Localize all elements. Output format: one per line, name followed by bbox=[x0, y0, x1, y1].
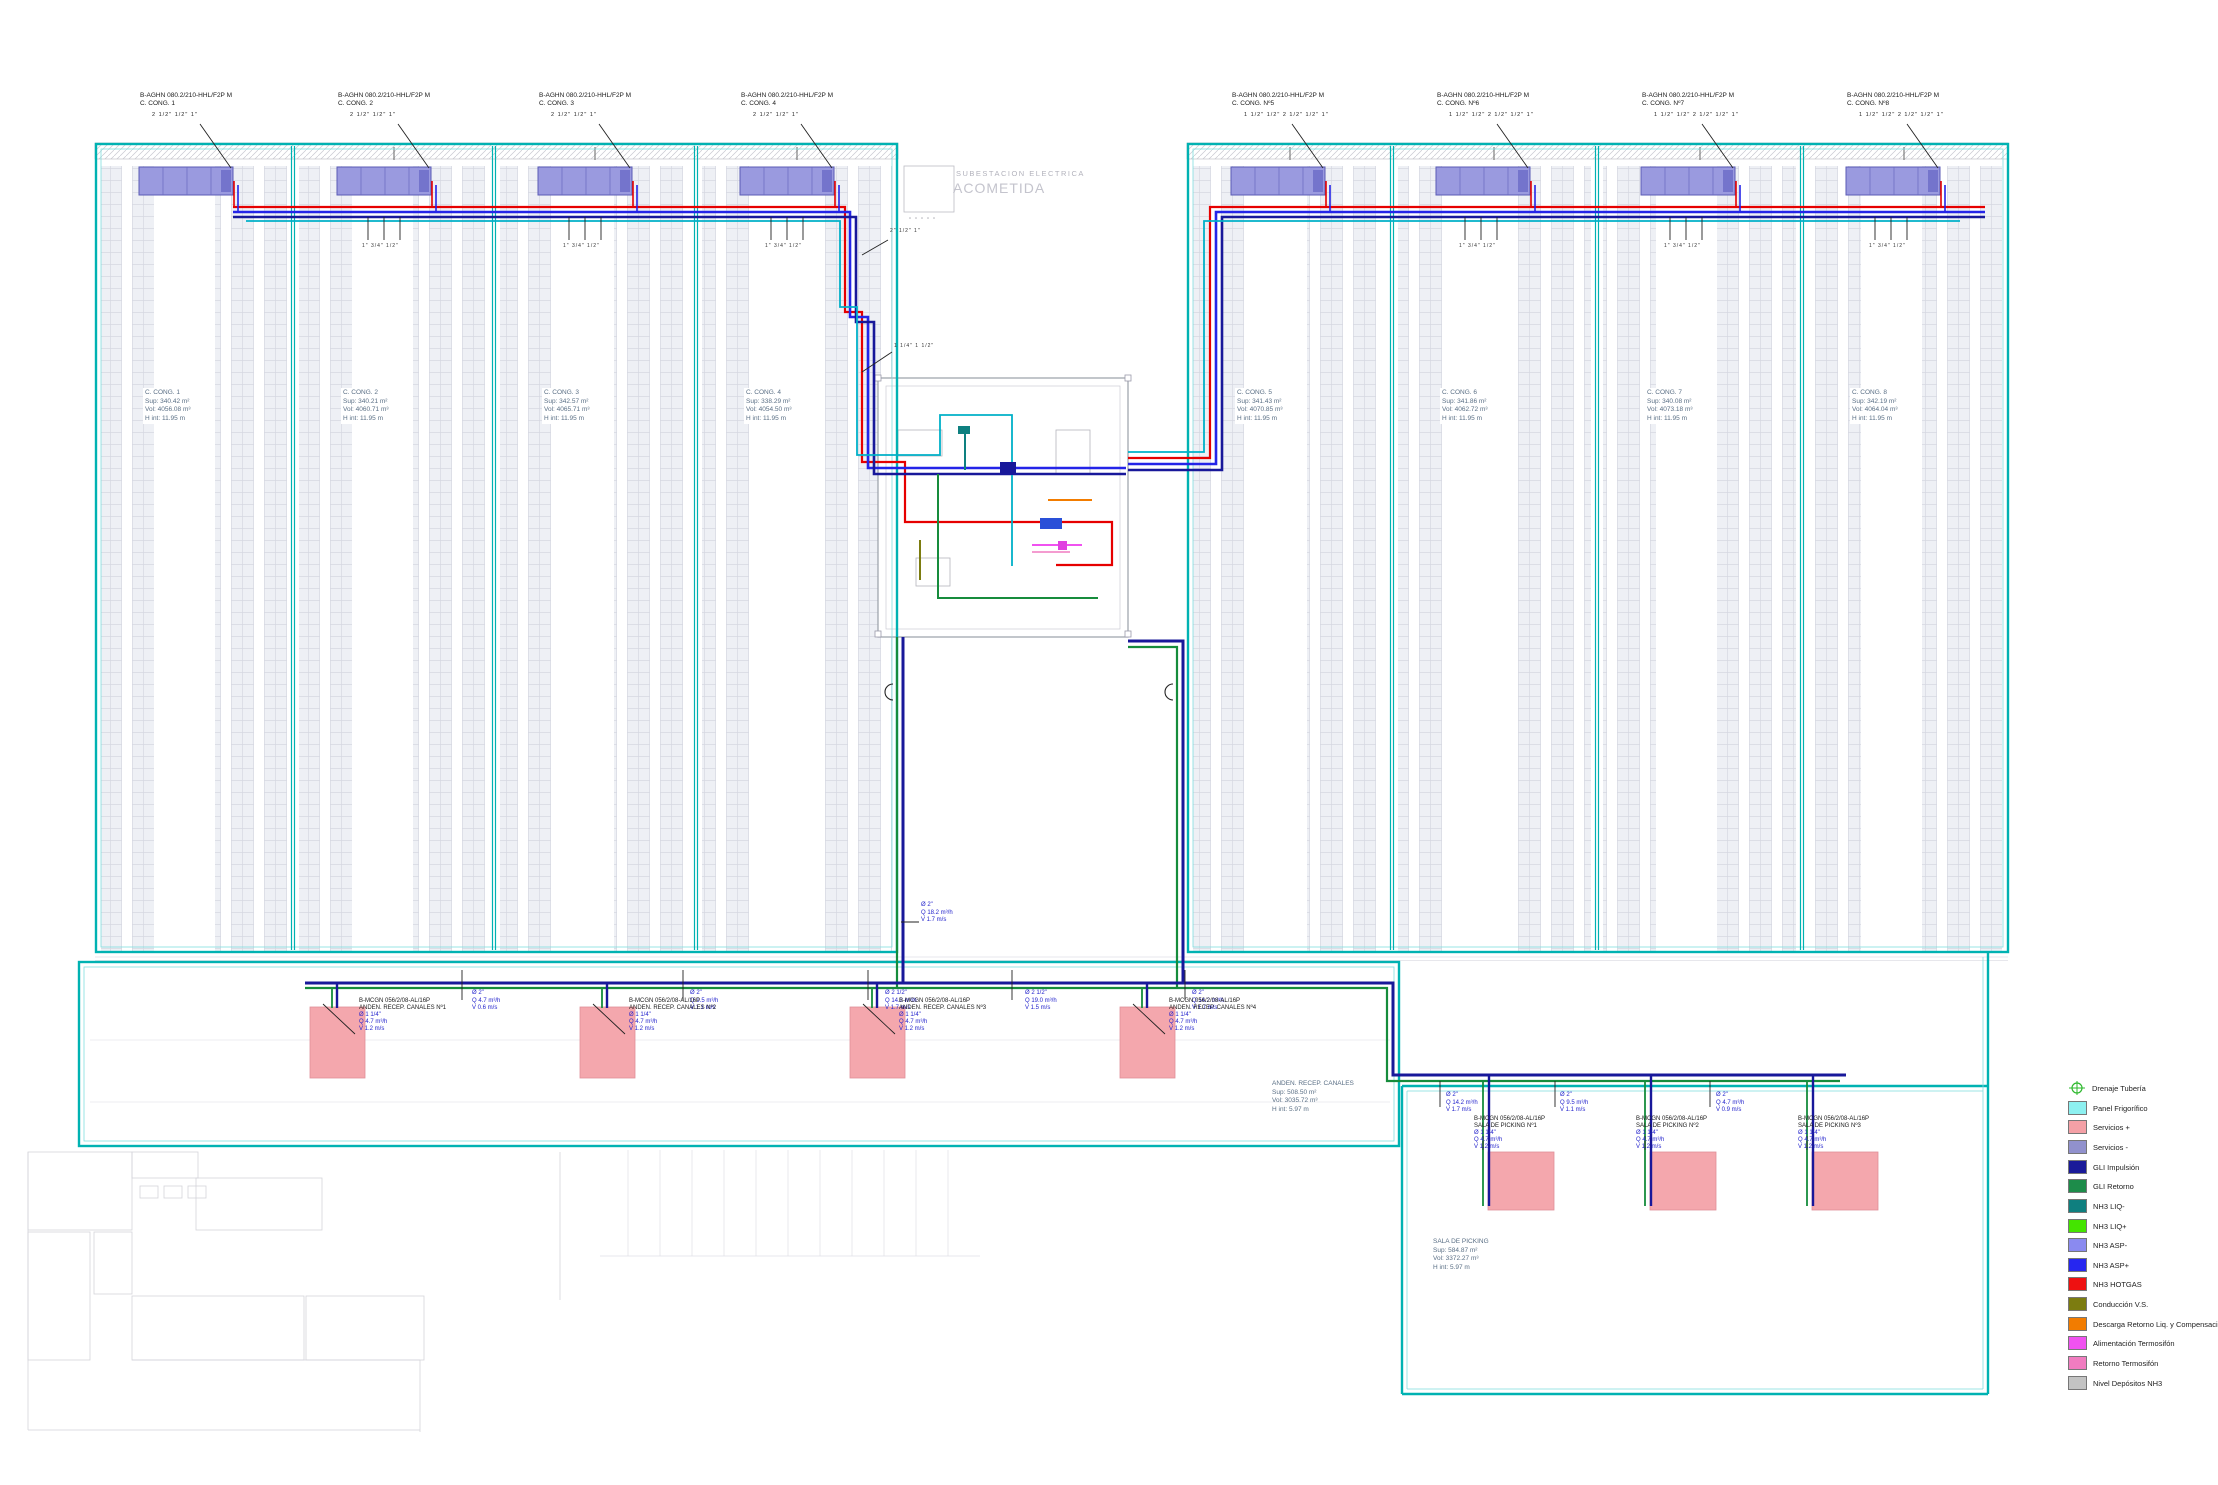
legend-label: Servicios - bbox=[2093, 1143, 2128, 1152]
pipe-velocity: V 1.1 m/s bbox=[1560, 1107, 1588, 1115]
pipe-flow: Q 14.2 m³/h bbox=[1446, 1100, 1478, 1108]
legend-item: Panel Frigorífico bbox=[2068, 1100, 2148, 1116]
legend-item: Nivel Depósitos NH3 bbox=[2068, 1375, 2162, 1391]
pipe-diameter: Ø 2" bbox=[921, 902, 953, 910]
pipe-diameter: Ø 2 1/2" bbox=[885, 990, 917, 998]
box-diameter: Ø 1 1/4" bbox=[359, 1012, 446, 1019]
legend-label: Drenaje Tubería bbox=[2092, 1084, 2146, 1093]
chamber-info-name: C. CONG. 5 bbox=[1237, 389, 1283, 398]
legend-label: NH3 HOTGAS bbox=[2093, 1280, 2142, 1289]
pipe-diameter: Ø 2" bbox=[1192, 990, 1224, 998]
chamber-vol: Vol: 4062.72 m³ bbox=[1442, 406, 1488, 415]
pipe-diameter: Ø 2" bbox=[472, 990, 500, 998]
chamber-info-name: C. CONG. 3 bbox=[544, 389, 590, 398]
legend-swatch bbox=[2068, 1317, 2087, 1331]
chamber-name: C. CONG. 2 bbox=[338, 100, 430, 108]
legend-swatch bbox=[2068, 1179, 2087, 1193]
unit-model: B-AGHN 080.2/210-HHL/F2P M bbox=[1232, 92, 1329, 100]
pipe-sizes: 2 1/2" 1/2" 1" bbox=[152, 111, 232, 119]
unit-model: B-AGHN 080.2/210-HHL/F2P M bbox=[741, 92, 833, 100]
stub-sizes: 1" 3/4" 1/2" bbox=[1459, 243, 1496, 249]
pipe-velocity: V 1.7 m/s bbox=[1446, 1107, 1478, 1115]
box-velocity: V 1.2 m/s bbox=[1636, 1144, 1707, 1151]
area-info-anden: ANDEN. RECEP. CANALESSup: 508.50 m²Vol: … bbox=[1272, 1080, 1354, 1114]
legend-swatch bbox=[2068, 1238, 2087, 1252]
area-vol: Vol: 3035.72 m³ bbox=[1272, 1097, 1354, 1106]
legend-swatch bbox=[2068, 1376, 2087, 1390]
unit-model: B-AGHN 080.2/210-HHL/F2P M bbox=[1642, 92, 1739, 100]
service-box-label: B-MCGN 056/2/08-AL/16PANDEN. RECEP. CANA… bbox=[1169, 998, 1256, 1033]
chamber-info-name: C. CONG. 2 bbox=[343, 389, 389, 398]
pipe-flow: Q 4.7 m³/h bbox=[472, 998, 500, 1006]
drop-green-2 bbox=[1128, 647, 1177, 988]
unit-model: B-AGHN 080.2/210-HHL/F2P M bbox=[140, 92, 232, 100]
unit-model: B-AGHN 080.2/210-HHL/F2P M bbox=[1847, 92, 1944, 100]
box-name: ANDEN. RECEP. CANALES Nº1 bbox=[359, 1005, 446, 1012]
legend-item: NH3 ASP- bbox=[2068, 1237, 2127, 1253]
chamber-info: C. CONG. 1Sup: 340.42 m²Vol: 4056.08 m³H… bbox=[143, 388, 193, 424]
chamber-sup: Sup: 342.57 m² bbox=[544, 398, 590, 407]
legend-item: NH3 HOTGAS bbox=[2068, 1276, 2142, 1292]
unit-model: B-AGHN 080.2/210-HHL/F2P M bbox=[1437, 92, 1534, 100]
service-boxes bbox=[310, 1007, 1878, 1210]
box-flow: Q 4.7 m³/h bbox=[1636, 1137, 1707, 1144]
box-name: SALA DE PICKING Nº2 bbox=[1636, 1123, 1707, 1130]
box-flow: Q 4.7 m³/h bbox=[1474, 1137, 1545, 1144]
box-diameter: Ø 1 1/4" bbox=[1798, 1130, 1869, 1137]
box-name: ANDEN. RECEP. CANALES Nº3 bbox=[899, 1005, 986, 1012]
box-name: ANDEN. RECEP. CANALES Nº2 bbox=[629, 1005, 716, 1012]
area-sup: Sup: 584.87 m² bbox=[1433, 1247, 1489, 1256]
legend-label: NH3 ASP+ bbox=[2093, 1261, 2129, 1270]
box-diameter: Ø 1 1/4" bbox=[629, 1012, 716, 1019]
pipe-label: Ø 2"Q 9.5 m³/hV 1.1 m/s bbox=[1560, 1092, 1588, 1115]
chamber-name: C. CONG. 1 bbox=[140, 100, 232, 108]
substation-title: SUBESTACION ELECTRICA bbox=[956, 169, 1085, 178]
box-model: B-MCGN 056/2/08-AL/16P bbox=[629, 998, 716, 1005]
box-velocity: V 1.2 m/s bbox=[629, 1026, 716, 1033]
box-diameter: Ø 1 1/4" bbox=[899, 1012, 986, 1019]
pipe-flow: Q 19.0 m³/h bbox=[1025, 998, 1057, 1006]
chamber-name: C. CONG. Nº6 bbox=[1437, 100, 1534, 108]
pipe-label: Ø 2"Q 14.2 m³/hV 1.7 m/s bbox=[1446, 1092, 1478, 1115]
chamber-info: C. CONG. 5Sup: 341.43 m²Vol: 4070.85 m³H… bbox=[1235, 388, 1285, 424]
chamber-h: H int: 11.95 m bbox=[746, 415, 792, 424]
chamber-sup: Sup: 340.21 m² bbox=[343, 398, 389, 407]
dock-lines bbox=[95, 957, 2008, 961]
pipe-velocity: V 1.5 m/s bbox=[1025, 1005, 1057, 1013]
chamber-info-name: C. CONG. 8 bbox=[1852, 389, 1898, 398]
chamber-sup: Sup: 340.42 m² bbox=[145, 398, 191, 407]
area-title: ANDEN. RECEP. CANALES bbox=[1272, 1080, 1354, 1089]
bottom-green bbox=[305, 988, 1840, 1081]
legend-label: Conducción V.S. bbox=[2093, 1300, 2148, 1309]
legend-label: NH3 LIQ+ bbox=[2093, 1222, 2127, 1231]
legend-item: GLI Retorno bbox=[2068, 1178, 2134, 1194]
legend-label: Descarga Retorno Liq. y Compensación bbox=[2093, 1320, 2218, 1329]
legend-label: Servicios + bbox=[2093, 1123, 2130, 1132]
unit-model: B-AGHN 080.2/210-HHL/F2P M bbox=[338, 92, 430, 100]
box-name: SALA DE PICKING Nº1 bbox=[1474, 1123, 1545, 1130]
chamber-h: H int: 11.95 m bbox=[1852, 415, 1898, 424]
box-name: SALA DE PICKING Nº3 bbox=[1798, 1123, 1869, 1130]
box-flow: Q 4.7 m³/h bbox=[1798, 1137, 1869, 1144]
pipe-diameter: Ø 2" bbox=[1446, 1092, 1478, 1100]
legend-swatch bbox=[2068, 1297, 2087, 1311]
chamber-sup: Sup: 340.08 m² bbox=[1647, 398, 1693, 407]
stub-sizes: 1" 3/4" 1/2" bbox=[765, 243, 802, 249]
chamber-sup: Sup: 342.19 m² bbox=[1852, 398, 1898, 407]
pipe-diameter: Ø 2" bbox=[1560, 1092, 1588, 1100]
evaporator-label: B-AGHN 080.2/210-HHL/F2P MC. CONG. Nº51 … bbox=[1232, 92, 1329, 119]
pipe-velocity: V 0.6 m/s bbox=[472, 1005, 500, 1013]
box-model: B-MCGN 056/2/08-AL/16P bbox=[1474, 1116, 1545, 1123]
pipe-label: Ø 2"Q 4.7 m³/hV 0.6 m/s bbox=[472, 990, 500, 1013]
pipe-sizes: 1 1/2" 1/2" 2 1/2" 1/2" 1" bbox=[1244, 111, 1329, 119]
service-box-label: B-MCGN 056/2/08-AL/16PSALA DE PICKING Nº… bbox=[1474, 1116, 1545, 1151]
service-box-label: B-MCGN 056/2/08-AL/16PANDEN. RECEP. CANA… bbox=[359, 998, 446, 1033]
evaporator-label: B-AGHN 080.2/210-HHL/F2P MC. CONG. 42 1/… bbox=[741, 92, 833, 119]
pipe-diameter: Ø 2" bbox=[1716, 1092, 1744, 1100]
evaporator-label: B-AGHN 080.2/210-HHL/F2P MC. CONG. 32 1/… bbox=[539, 92, 631, 119]
box-velocity: V 1.2 m/s bbox=[359, 1026, 446, 1033]
box-diameter: Ø 1 1/4" bbox=[1169, 1012, 1256, 1019]
legend-label: NH3 ASP- bbox=[2093, 1241, 2127, 1250]
box-diameter: Ø 1 1/4" bbox=[1474, 1130, 1545, 1137]
service-box-label: B-MCGN 056/2/08-AL/16PSALA DE PICKING Nº… bbox=[1636, 1116, 1707, 1151]
legend-swatch bbox=[2068, 1336, 2087, 1350]
drain-symbol-icon bbox=[2068, 1081, 2086, 1095]
legend-swatch bbox=[2068, 1277, 2087, 1291]
chamber-h: H int: 11.95 m bbox=[1442, 415, 1488, 424]
legend-label: Retorno Termosifón bbox=[2093, 1359, 2158, 1368]
box-flow: Q 4.7 m³/h bbox=[1169, 1019, 1256, 1026]
chamber-vol: Vol: 4060.71 m³ bbox=[343, 406, 389, 415]
pipe-velocity: V 1.7 m/s bbox=[921, 917, 953, 925]
chamber-info: C. CONG. 2Sup: 340.21 m²Vol: 4060.71 m³H… bbox=[341, 388, 391, 424]
legend-swatch bbox=[2068, 1140, 2087, 1154]
chamber-sup: Sup: 341.86 m² bbox=[1442, 398, 1488, 407]
legend-label: NH3 LIQ- bbox=[2093, 1202, 2125, 1211]
drop-navy-2 bbox=[1128, 641, 1183, 983]
pipe-sizes: 1 1/2" 1/2" 2 1/2" 1/2" 1" bbox=[1654, 111, 1739, 119]
chamber-h: H int: 11.95 m bbox=[1647, 415, 1693, 424]
legend-swatch bbox=[2068, 1219, 2087, 1233]
box-model: B-MCGN 056/2/08-AL/16P bbox=[1636, 1116, 1707, 1123]
pipe-flow: Q 4.7 m³/h bbox=[1716, 1100, 1744, 1108]
legend-swatch bbox=[2068, 1120, 2087, 1134]
legend-swatch bbox=[2068, 1356, 2087, 1370]
legend-swatch bbox=[2068, 1258, 2087, 1272]
chamber-name: C. CONG. Nº7 bbox=[1642, 100, 1739, 108]
chamber-vol: Vol: 4070.85 m³ bbox=[1237, 406, 1283, 415]
pipe-sizes: 1 1/2" 1/2" 2 1/2" 1/2" 1" bbox=[1449, 111, 1534, 119]
pipe-sizes: 2 1/2" 1/2" 1" bbox=[551, 111, 631, 119]
acometida-title: ACOMETIDA bbox=[953, 180, 1045, 196]
legend-label: Panel Frigorífico bbox=[2093, 1104, 2148, 1113]
pipe-label: Ø 2"Q 4.7 m³/hV 0.9 m/s bbox=[1716, 1092, 1744, 1115]
stub-sizes: 1" 3/4" 1/2" bbox=[362, 243, 399, 249]
pipe-sizes: 2 1/2" 1/2" 1" bbox=[350, 111, 430, 119]
legend-label: GLI Impulsión bbox=[2093, 1163, 2139, 1172]
legend-item: Drenaje Tubería bbox=[2068, 1080, 2146, 1096]
pipe-velocity: V 0.9 m/s bbox=[1716, 1107, 1744, 1115]
chamber-info-name: C. CONG. 4 bbox=[746, 389, 792, 398]
box-model: B-MCGN 056/2/08-AL/16P bbox=[359, 998, 446, 1005]
drawing-layer bbox=[0, 0, 2218, 1485]
chamber-h: H int: 11.95 m bbox=[343, 415, 389, 424]
box-model: B-MCGN 056/2/08-AL/16P bbox=[1169, 998, 1256, 1005]
chamber-sup: Sup: 341.43 m² bbox=[1237, 398, 1283, 407]
chamber-info: C. CONG. 7Sup: 340.08 m²Vol: 4073.18 m³H… bbox=[1645, 388, 1695, 424]
branch-sizes: 2" 1/2" 1" bbox=[890, 228, 921, 234]
pipe-label: Ø 2"Q 18.2 m³/hV 1.7 m/s bbox=[921, 902, 953, 925]
legend-item: GLI Impulsión bbox=[2068, 1159, 2139, 1175]
chamber-info: C. CONG. 3Sup: 342.57 m²Vol: 4065.71 m³H… bbox=[542, 388, 592, 424]
legend-label: Nivel Depósitos NH3 bbox=[2093, 1379, 2162, 1388]
chamber-vol: Vol: 4065.71 m³ bbox=[544, 406, 590, 415]
legend-item: NH3 LIQ- bbox=[2068, 1198, 2125, 1214]
legend-item: NH3 LIQ+ bbox=[2068, 1218, 2127, 1234]
chamber-vol: Vol: 4073.18 m³ bbox=[1647, 406, 1693, 415]
legend-item: Conducción V.S. bbox=[2068, 1296, 2148, 1312]
legend-swatch bbox=[2068, 1101, 2087, 1115]
chamber-info-name: C. CONG. 7 bbox=[1647, 389, 1693, 398]
service-box-label: B-MCGN 056/2/08-AL/16PSALA DE PICKING Nº… bbox=[1798, 1116, 1869, 1151]
area-title: SALA DE PICKING bbox=[1433, 1238, 1489, 1247]
stub-sizes: 1" 3/4" 1/2" bbox=[1869, 243, 1906, 249]
evaporator-label: B-AGHN 080.2/210-HHL/F2P MC. CONG. Nº61 … bbox=[1437, 92, 1534, 119]
chamber-info: C. CONG. 4Sup: 338.29 m²Vol: 4054.50 m³H… bbox=[744, 388, 794, 424]
anden-stubs-green bbox=[332, 988, 1142, 1008]
legend-item: Servicios + bbox=[2068, 1119, 2130, 1135]
pipe-label: Ø 2 1/2"Q 19.0 m³/hV 1.5 m/s bbox=[1025, 990, 1057, 1013]
service-box-label: B-MCGN 056/2/08-AL/16PANDEN. RECEP. CANA… bbox=[899, 998, 986, 1033]
box-name: ANDEN. RECEP. CANALES Nº4 bbox=[1169, 1005, 1256, 1012]
chamber-name: C. CONG. Nº8 bbox=[1847, 100, 1944, 108]
legend-label: Alimentación Termosifón bbox=[2093, 1339, 2175, 1348]
chamber-name: C. CONG. 3 bbox=[539, 100, 631, 108]
area-h: H int: 5.97 m bbox=[1433, 1264, 1489, 1273]
evaporator-label: B-AGHN 080.2/210-HHL/F2P MC. CONG. 22 1/… bbox=[338, 92, 430, 119]
box-diameter: Ø 1 1/4" bbox=[1636, 1130, 1707, 1137]
box-velocity: V 1.2 m/s bbox=[1798, 1144, 1869, 1151]
legend-item: NH3 ASP+ bbox=[2068, 1257, 2129, 1273]
legend-item: Alimentación Termosifón bbox=[2068, 1335, 2175, 1351]
legend-swatch bbox=[2068, 1160, 2087, 1174]
chamber-info: C. CONG. 8Sup: 342.19 m²Vol: 4064.04 m³H… bbox=[1850, 388, 1900, 424]
chamber-vol: Vol: 4054.50 m³ bbox=[746, 406, 792, 415]
box-flow: Q 4.7 m³/h bbox=[359, 1019, 446, 1026]
plant-drawing: B-AGHN 080.2/210-HHL/F2P MC. CONG. 12 1/… bbox=[0, 0, 2218, 1485]
chamber-info-name: C. CONG. 1 bbox=[145, 389, 191, 398]
evaporator-label: B-AGHN 080.2/210-HHL/F2P MC. CONG. 12 1/… bbox=[140, 92, 232, 119]
pipe-diameter: Ø 2 1/2" bbox=[1025, 990, 1057, 998]
stub-sizes: 1" 3/4" 1/2" bbox=[563, 243, 600, 249]
chamber-h: H int: 11.95 m bbox=[544, 415, 590, 424]
area-info-picking: SALA DE PICKINGSup: 584.87 m²Vol: 3372.2… bbox=[1433, 1238, 1489, 1272]
box-velocity: V 1.2 m/s bbox=[899, 1026, 986, 1033]
branch-sizes: 1 1/4" 1 1/2" bbox=[894, 343, 934, 349]
floorplan-faint bbox=[28, 1040, 1390, 1432]
box-flow: Q 4.7 m³/h bbox=[629, 1019, 716, 1026]
box-velocity: V 1.2 m/s bbox=[1169, 1026, 1256, 1033]
legend-item: Descarga Retorno Liq. y Compensación bbox=[2068, 1316, 2218, 1332]
chamber-info-name: C. CONG. 6 bbox=[1442, 389, 1488, 398]
area-h: H int: 5.97 m bbox=[1272, 1106, 1354, 1115]
evaporator-label: B-AGHN 080.2/210-HHL/F2P MC. CONG. Nº81 … bbox=[1847, 92, 1944, 119]
box-model: B-MCGN 056/2/08-AL/16P bbox=[1798, 1116, 1869, 1123]
legend-item: Retorno Termosifón bbox=[2068, 1355, 2158, 1371]
chamber-vol: Vol: 4056.08 m³ bbox=[145, 406, 191, 415]
legend-label: GLI Retorno bbox=[2093, 1182, 2134, 1191]
box-model: B-MCGN 056/2/08-AL/16P bbox=[899, 998, 986, 1005]
chamber-info: C. CONG. 6Sup: 341.86 m²Vol: 4062.72 m³H… bbox=[1440, 388, 1490, 424]
pipe-diameter: Ø 2" bbox=[690, 990, 718, 998]
substation-outline bbox=[904, 166, 954, 219]
chamber-name: C. CONG. Nº5 bbox=[1232, 100, 1329, 108]
chamber-h: H int: 11.95 m bbox=[1237, 415, 1283, 424]
chamber-name: C. CONG. 4 bbox=[741, 100, 833, 108]
expansion-loop-2 bbox=[1165, 684, 1173, 700]
legend-swatch bbox=[2068, 1199, 2087, 1213]
box-velocity: V 1.2 m/s bbox=[1474, 1144, 1545, 1151]
chamber-vol: Vol: 4064.04 m³ bbox=[1852, 406, 1898, 415]
stub-sizes: 1" 3/4" 1/2" bbox=[1664, 243, 1701, 249]
area-sup: Sup: 508.50 m² bbox=[1272, 1089, 1354, 1098]
legend-item: Servicios - bbox=[2068, 1139, 2128, 1155]
pipe-flow: Q 18.2 m³/h bbox=[921, 910, 953, 918]
pipe-sizes: 2 1/2" 1/2" 1" bbox=[753, 111, 833, 119]
chamber-h: H int: 11.95 m bbox=[145, 415, 191, 424]
pipe-sizes: 1 1/2" 1/2" 2 1/2" 1/2" 1" bbox=[1859, 111, 1944, 119]
chamber-sup: Sup: 338.29 m² bbox=[746, 398, 792, 407]
box-flow: Q 4.7 m³/h bbox=[899, 1019, 986, 1026]
evaporator-label: B-AGHN 080.2/210-HHL/F2P MC. CONG. Nº71 … bbox=[1642, 92, 1739, 119]
unit-model: B-AGHN 080.2/210-HHL/F2P M bbox=[539, 92, 631, 100]
bottom-navy bbox=[305, 983, 1846, 1075]
service-box-label: B-MCGN 056/2/08-AL/16PANDEN. RECEP. CANA… bbox=[629, 998, 716, 1033]
area-vol: Vol: 3372.27 m³ bbox=[1433, 1255, 1489, 1264]
pipe-flow: Q 9.5 m³/h bbox=[1560, 1100, 1588, 1108]
